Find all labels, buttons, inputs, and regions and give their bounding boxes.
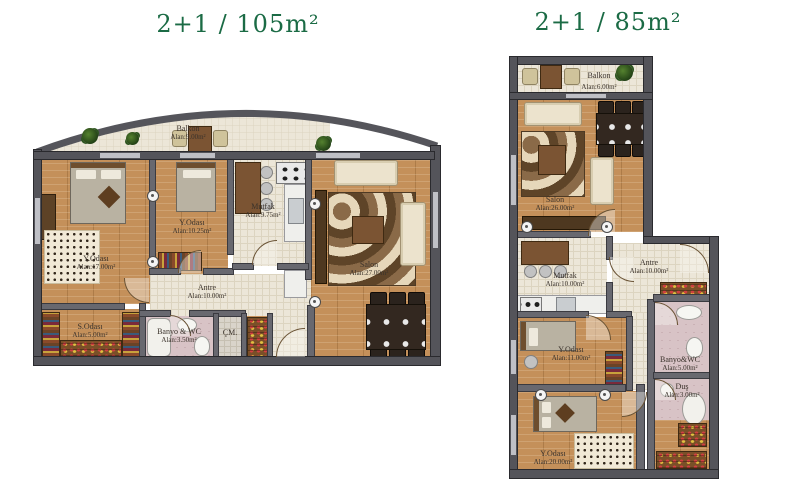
interior-wall bbox=[140, 311, 170, 316]
interior-wall bbox=[627, 317, 632, 390]
window bbox=[35, 198, 40, 244]
room-label-balkon: Balkon Alan:6.00m² bbox=[560, 65, 638, 91]
wall bbox=[644, 237, 718, 243]
interior-wall bbox=[34, 304, 124, 309]
stove bbox=[276, 162, 306, 184]
room-label-balkon: Balkon Alan:9.00m² bbox=[148, 124, 228, 141]
throw-pillow bbox=[98, 186, 121, 209]
dining-table bbox=[366, 304, 426, 350]
wall bbox=[34, 357, 440, 365]
kitchen-chair bbox=[260, 166, 273, 179]
interior-wall bbox=[278, 264, 308, 269]
interior-wall bbox=[510, 232, 590, 237]
room-label-sodasi: S.Odası Alan:5.00m² bbox=[50, 322, 130, 339]
wall-light-icon bbox=[521, 221, 533, 233]
plan-title-105: 2+1 / 105m² bbox=[88, 10, 388, 38]
wall-light-icon bbox=[147, 256, 159, 268]
interior-wall bbox=[607, 237, 612, 259]
shoe-closet bbox=[247, 317, 269, 358]
room-label-mutfak: Mutfak Alan:9.75m² bbox=[223, 202, 303, 219]
floor-plan-sheet: 2+1 / 105m² 2+1 / 85m² bbox=[0, 0, 800, 492]
pillow bbox=[182, 169, 212, 179]
room-label-dus: Duş Alan:3.00m² bbox=[650, 382, 714, 399]
headboard bbox=[534, 397, 539, 431]
room-label-yodasi-1025: Y.Odası Alan:10.25m² bbox=[152, 218, 232, 235]
room-label-banyo: Banyo&WC Alan:5.00m² bbox=[648, 355, 712, 372]
headboard bbox=[177, 163, 215, 168]
room-label-salon: Salon Alan:27.00m² bbox=[329, 260, 409, 277]
shoe-cabinet bbox=[60, 340, 122, 357]
interior-wall bbox=[607, 283, 612, 313]
window bbox=[180, 153, 215, 158]
interior-wall bbox=[654, 373, 710, 378]
window bbox=[511, 340, 516, 374]
wall bbox=[510, 470, 718, 478]
room-label-antre: Antre Alan:10.00m² bbox=[610, 258, 688, 275]
room-label-yodasi-17: Y.Odası Alan:17.00m² bbox=[56, 254, 136, 271]
pillow bbox=[100, 169, 122, 180]
room-label-banyo: Banyo & WC Alan:3.50m² bbox=[137, 327, 221, 344]
interior-wall bbox=[233, 264, 253, 269]
double-bed bbox=[70, 162, 126, 224]
wall bbox=[644, 57, 652, 243]
window bbox=[316, 153, 360, 158]
bathroom-sink bbox=[676, 305, 702, 320]
single-bed bbox=[176, 162, 216, 212]
room-label-antre: Antre Alan:10.00m² bbox=[167, 283, 247, 300]
room-label-mutfak: Mutfak Alan:10.00m² bbox=[526, 271, 604, 288]
plant-icon bbox=[82, 128, 98, 144]
window bbox=[433, 192, 438, 248]
room-label-cm: ÇM. bbox=[212, 328, 248, 337]
interior-wall bbox=[150, 159, 155, 259]
wall bbox=[510, 57, 652, 64]
headboard bbox=[71, 163, 125, 168]
stove bbox=[520, 297, 542, 312]
wall-light-icon bbox=[601, 221, 613, 233]
wall bbox=[431, 146, 440, 365]
interior-wall bbox=[306, 159, 311, 279]
wall bbox=[34, 152, 434, 159]
wall-light-icon bbox=[535, 389, 547, 401]
interior-wall bbox=[268, 314, 272, 357]
room-label-yodasi-11: Y.Odası Alan:11.00m² bbox=[532, 345, 610, 362]
pillow bbox=[75, 169, 97, 180]
fridge bbox=[284, 270, 307, 298]
double-bed bbox=[533, 396, 597, 432]
wall-light-icon bbox=[147, 190, 159, 202]
balcony-table bbox=[540, 65, 562, 89]
armchair-sofa bbox=[400, 202, 426, 266]
interior-wall bbox=[308, 306, 314, 357]
floor-plan-85: Balkon Alan:6.00m² Salon Alan:26.00m² Mu… bbox=[508, 55, 770, 483]
window bbox=[566, 94, 606, 98]
coffee-table bbox=[538, 145, 566, 175]
plant-icon bbox=[316, 136, 331, 151]
pillow bbox=[528, 327, 539, 347]
interior-wall bbox=[654, 295, 710, 301]
floor-plan-105: Balkon Alan:9.00m² Y.Odası Alan:17.00m² … bbox=[30, 106, 448, 368]
wall-light-icon bbox=[309, 198, 321, 210]
kitchen-chair bbox=[260, 182, 273, 195]
plan-title-85: 2+1 / 85m² bbox=[458, 8, 758, 36]
sofa bbox=[524, 102, 582, 126]
dining-chair bbox=[598, 144, 614, 157]
coffee-table bbox=[352, 216, 384, 244]
wall-light-icon bbox=[309, 296, 321, 308]
kitchen-sink bbox=[556, 297, 576, 312]
plant-icon bbox=[126, 132, 139, 145]
window bbox=[100, 153, 140, 158]
balcony-chair bbox=[522, 68, 538, 85]
headboard bbox=[521, 322, 526, 350]
shoe-closet bbox=[656, 451, 707, 469]
pillow bbox=[541, 401, 552, 414]
pillow bbox=[541, 416, 552, 429]
wall-light-icon bbox=[599, 389, 611, 401]
dining-table bbox=[596, 113, 644, 145]
interior-wall bbox=[204, 269, 233, 274]
throw-pillow bbox=[555, 403, 575, 423]
sofa bbox=[334, 160, 398, 186]
dining-chair bbox=[615, 144, 631, 157]
shoe-closet bbox=[678, 423, 707, 447]
room-label-salon: Salon Alan:26.00m² bbox=[516, 195, 594, 212]
kitchen-table bbox=[521, 241, 569, 265]
interior-wall bbox=[150, 269, 180, 274]
interior-wall bbox=[510, 312, 588, 317]
room-label-yodasi-20: Y.Odası Alan:20.00m² bbox=[514, 449, 592, 466]
wall bbox=[34, 150, 41, 365]
